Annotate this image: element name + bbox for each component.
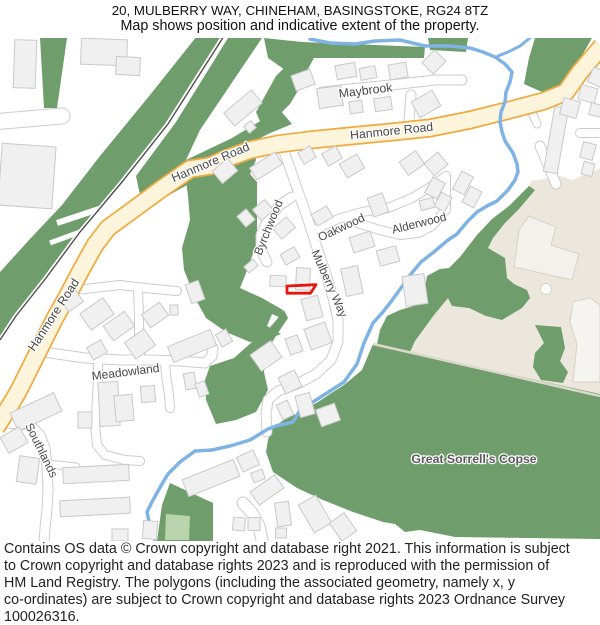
svg-text:Great Sorrell's Copse: Great Sorrell's Copse xyxy=(411,452,536,466)
